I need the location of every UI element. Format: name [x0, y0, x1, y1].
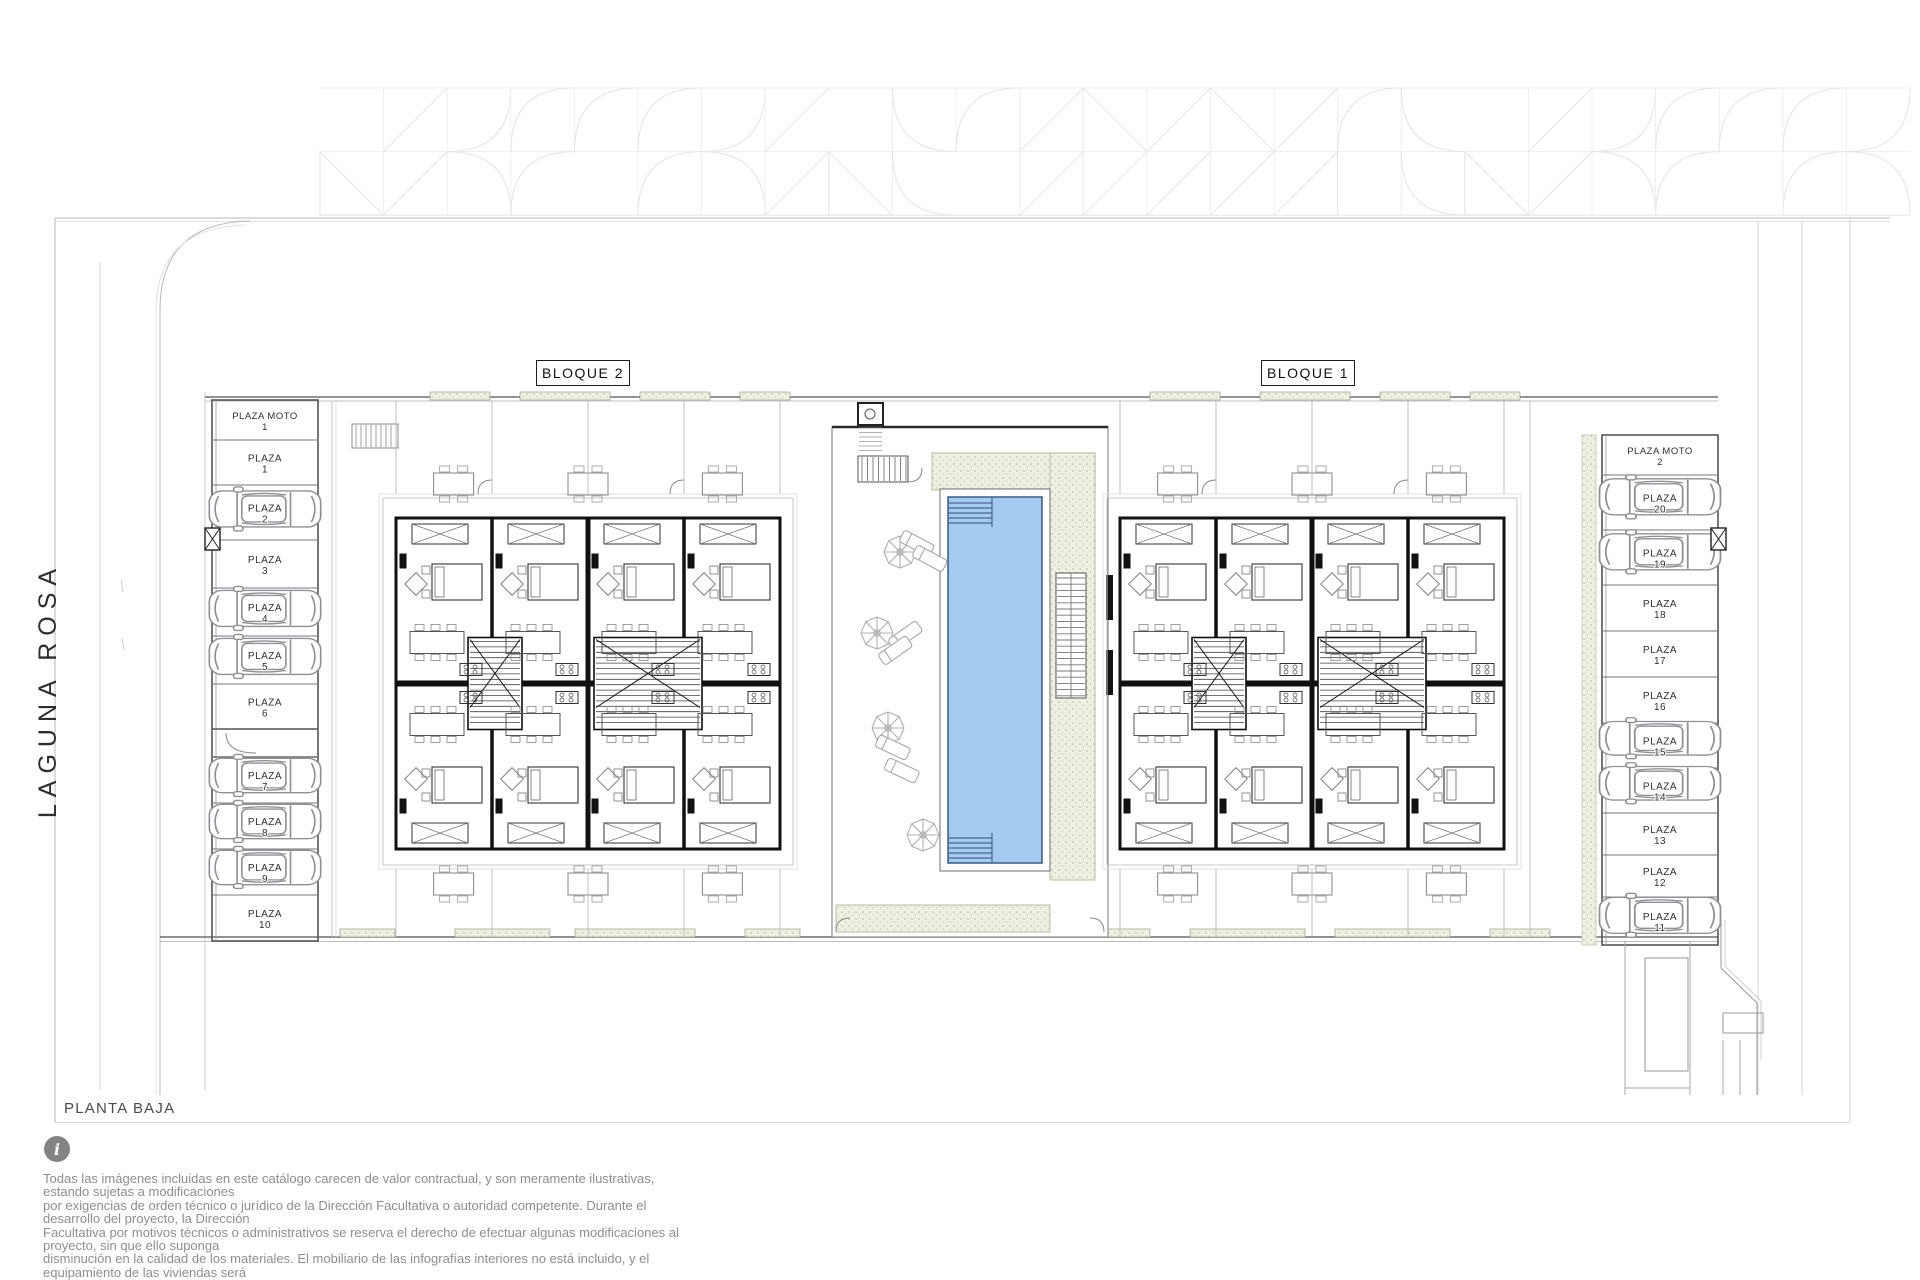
svg-text:PLAZA3: PLAZA3 [248, 555, 282, 577]
parking-slot: PLAZA18 [1602, 585, 1718, 621]
page-title: PLANTA BAJA [64, 1100, 175, 1117]
parking-slot: PLAZA5 [209, 634, 320, 678]
svg-text:PLAZA18: PLAZA18 [1643, 599, 1677, 621]
parking-column-right: PLAZA MOTO2PLAZA20PLAZA19PLAZA18PLAZA17P… [1600, 435, 1726, 945]
bloque-1-label: BLOQUE 1 [1261, 360, 1355, 386]
parking-slot: PLAZA15 [1600, 718, 1721, 759]
driveway-structure [1625, 920, 1763, 1095]
parking-slot: PLAZA2 [209, 485, 320, 531]
footer-divider [55, 1122, 1850, 1123]
info-icon: i [44, 1136, 70, 1162]
parking-slot: PLAZA6 [212, 684, 318, 720]
bloque-1-floorplan [1103, 401, 1521, 937]
parking-slot: PLAZA7 [209, 754, 320, 796]
parking-slot: PLAZA MOTO2 [1627, 446, 1693, 468]
bloque-2-label: BLOQUE 2 [536, 360, 630, 386]
floorplan-page: PLAZA MOTO1PLAZA1PLAZA2PLAZA3PLAZA4PLAZA… [0, 0, 1920, 1280]
parking-column-left: PLAZA MOTO1PLAZA1PLAZA2PLAZA3PLAZA4PLAZA… [205, 400, 321, 941]
svg-text:PLAZA12: PLAZA12 [1643, 867, 1677, 889]
svg-text:PLAZA17: PLAZA17 [1643, 645, 1677, 667]
swimming-pool [948, 497, 1042, 863]
parking-slot: PLAZA19 [1600, 530, 1721, 574]
parking-slot: PLAZA11 [1600, 893, 1721, 937]
parking-slot: PLAZA1 [212, 440, 318, 476]
svg-text:PLAZA MOTO1: PLAZA MOTO1 [232, 411, 298, 433]
parking-slot: PLAZA20 [1600, 475, 1721, 519]
parking-slot: PLAZA13 [1602, 813, 1718, 847]
parking-slot: PLAZA16 [1602, 677, 1718, 713]
pool-courtyard [832, 403, 1113, 937]
svg-text:PLAZA10: PLAZA10 [248, 909, 282, 931]
parking-slot: PLAZA4 [209, 586, 320, 630]
bloque-2-floorplan [379, 401, 797, 937]
parking-slot: PLAZA8 [209, 800, 320, 842]
parking-slot: PLAZA3 [212, 540, 318, 577]
svg-text:PLAZA MOTO2: PLAZA MOTO2 [1627, 446, 1693, 468]
site-plan-drawing: PLAZA MOTO1PLAZA1PLAZA2PLAZA3PLAZA4PLAZA… [0, 0, 1920, 1280]
street-label: LAGUNA ROSA [34, 545, 63, 835]
parking-slot: PLAZA MOTO1 [232, 411, 298, 433]
svg-text:PLAZA1: PLAZA1 [248, 454, 282, 476]
svg-text:PLAZA13: PLAZA13 [1643, 825, 1677, 847]
parking-slot: PLAZA10 [212, 895, 318, 931]
parking-slot: PLAZA14 [1600, 763, 1721, 804]
parking-slot: PLAZA12 [1602, 855, 1718, 889]
svg-text:PLAZA16: PLAZA16 [1643, 691, 1677, 713]
svg-text:PLAZA6: PLAZA6 [248, 698, 282, 720]
disclaimer-text: Todas las imágenes incluidas en este cat… [43, 1172, 683, 1280]
decorative-pattern-band [320, 88, 1910, 215]
parking-slot: PLAZA9 [209, 846, 320, 888]
parking-slot: PLAZA17 [1602, 631, 1718, 667]
